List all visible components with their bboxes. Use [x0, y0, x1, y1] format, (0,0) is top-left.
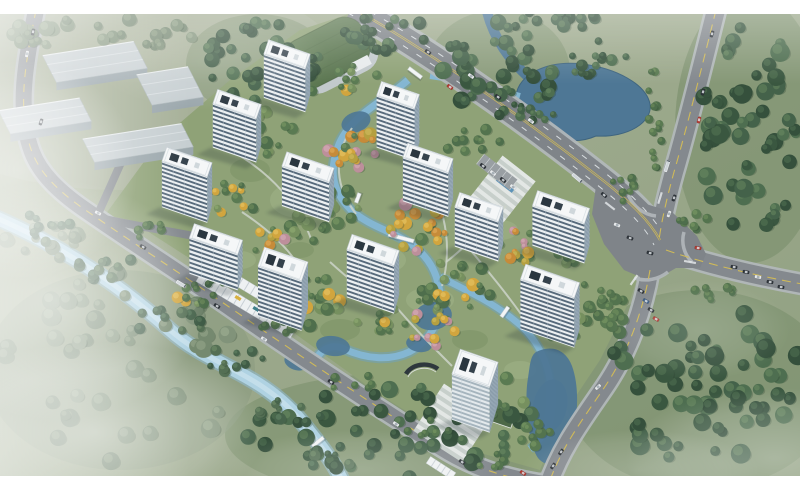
- aerial-rendering: Aerial architectural rendering of a resi…: [0, 0, 800, 485]
- rendering-canvas: [0, 0, 800, 485]
